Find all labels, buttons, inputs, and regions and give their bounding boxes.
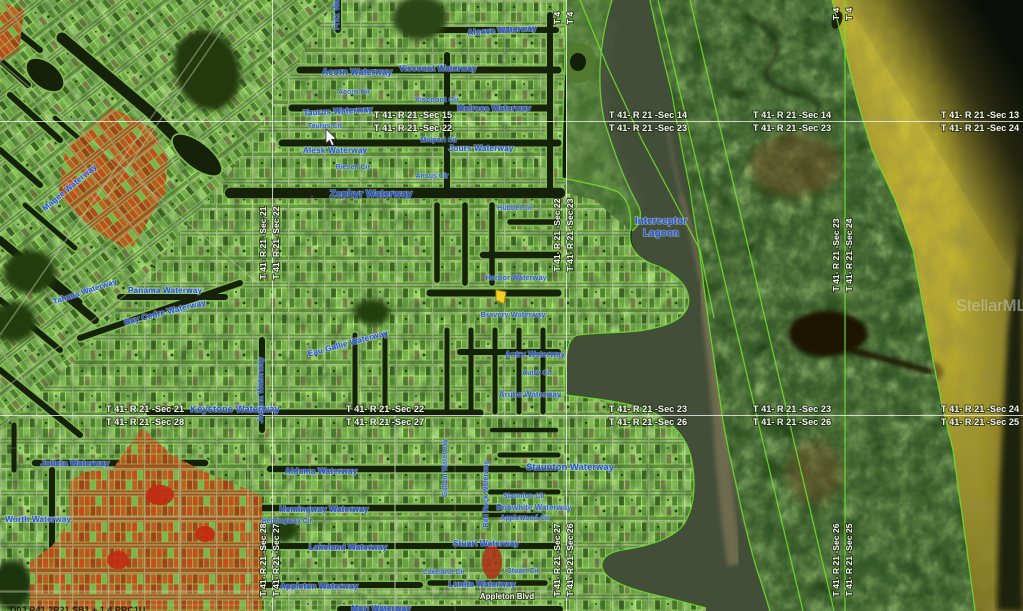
svg-text:T 4: T 4 <box>565 12 575 25</box>
svg-text:Lakeland Waterway: Lakeland Waterway <box>309 542 388 552</box>
svg-text:Autry Waterway: Autry Waterway <box>505 350 566 359</box>
svg-text:Aruba Waterway: Aruba Waterway <box>499 390 562 399</box>
svg-text:Applewood Cir: Applewood Cir <box>500 515 550 522</box>
svg-text:Julieta Waterway: Julieta Waterway <box>41 458 110 468</box>
svg-text:T 41- R 21 -Sec 23: T 41- R 21 -Sec 23 <box>609 404 687 414</box>
svg-text:Stuart Cir: Stuart Cir <box>507 568 539 575</box>
svg-text:Ansus Cir: Ansus Cir <box>415 173 448 180</box>
svg-text:T 41- R 21 -Sec 26: T 41- R 21 -Sec 26 <box>831 523 841 596</box>
svg-text:T 4: T 4 <box>552 12 562 25</box>
svg-text:Jours Waterway: Jours Waterway <box>449 143 514 153</box>
svg-text:Bobwhite Waterway: Bobwhite Waterway <box>496 503 572 512</box>
svg-text:T 41- R 21 -Sec 27: T 41- R 21 -Sec 27 <box>346 417 424 427</box>
svg-text:Zephyr Waterway: Zephyr Waterway <box>330 189 413 200</box>
svg-text:Fritz Waterway: Fritz Waterway <box>332 0 341 30</box>
svg-text:T 41- R 21 -Sec 27: T 41- R 21 -Sec 27 <box>552 523 562 596</box>
svg-text:T 41- R 21 -Sec 26: T 41- R 21 -Sec 26 <box>609 417 687 427</box>
svg-text:T 41- R 21 -Sec 26: T 41- R 21 -Sec 26 <box>565 523 575 596</box>
svg-text:T 41- R 21 -Sec 25: T 41- R 21 -Sec 25 <box>941 417 1019 427</box>
svg-text:Red Rock Waterway: Red Rock Waterway <box>483 461 490 528</box>
svg-text:Lakeland Cir: Lakeland Cir <box>423 569 465 576</box>
svg-text:Mori Waterway: Mori Waterway <box>351 603 411 611</box>
svg-text:Stuart Waterway: Stuart Waterway <box>453 538 520 548</box>
svg-text:T 41- R 21 -Sec 22: T 41- R 21 -Sec 22 <box>552 198 562 271</box>
svg-text:Bravery Waterway: Bravery Waterway <box>481 310 547 319</box>
svg-text:Worth Waterway: Worth Waterway <box>5 514 71 524</box>
svg-text:T 41- R 21 -Sec 27: T 41- R 21 -Sec 27 <box>271 523 281 596</box>
svg-text:Autry Cir: Autry Cir <box>522 370 552 377</box>
svg-text:Lagoon: Lagoon <box>643 228 679 239</box>
svg-text:Interceptor: Interceptor <box>635 216 687 227</box>
svg-text:Viscount Cir: Viscount Cir <box>415 95 459 104</box>
svg-text:Hemingway Cir: Hemingway Cir <box>262 518 313 525</box>
svg-text:T 41- R 21 -Sec 21: T 41- R 21 -Sec 21 <box>106 404 184 414</box>
svg-text:T 41- R 21 -Sec 28: T 41- R 21 -Sec 28 <box>258 523 268 596</box>
svg-text:T 41- R 21 -Sec 22: T 41- R 21 -Sec 22 <box>374 123 452 133</box>
svg-text:Melrose Waterway: Melrose Waterway <box>457 103 531 113</box>
svg-text:Acorn Waterway: Acorn Waterway <box>322 67 392 77</box>
svg-text:T 41- R 21 -Sec 23: T 41- R 21 -Sec 23 <box>753 123 831 133</box>
svg-text:T 4: T 4 <box>844 8 854 21</box>
svg-text:Keystone Waterway: Keystone Waterway <box>190 404 280 415</box>
svg-text:Aldama Waterway: Aldama Waterway <box>285 466 358 476</box>
svg-text:Viscount Waterway: Viscount Waterway <box>399 63 477 73</box>
svg-text:Lunita Waterway: Lunita Waterway <box>448 579 515 589</box>
svg-text:Gallant Waterway: Gallant Waterway <box>442 439 449 497</box>
svg-text:D03 R41 2R21 SB1 + 1 4 PRC1U: D03 R41 2R21 SB1 + 1 4 PRC1U <box>10 605 145 611</box>
svg-text:T 41- R 21 -Sec 14: T 41- R 21 -Sec 14 <box>753 110 832 120</box>
svg-text:Taurus Cir: Taurus Cir <box>308 123 343 130</box>
svg-text:T 41- R 21 -Sec 26: T 41- R 21 -Sec 26 <box>753 417 831 427</box>
svg-text:Harbor Waterway: Harbor Waterway <box>485 273 547 282</box>
svg-text:Appleton Blvd: Appleton Blvd <box>480 592 534 601</box>
svg-text:T 41- R 21 -Sec 24: T 41- R 21 -Sec 24 <box>844 218 854 291</box>
svg-text:Riesen Cir: Riesen Cir <box>336 164 371 171</box>
svg-text:Panama Waterway: Panama Waterway <box>128 285 203 295</box>
svg-text:T 41- R 21 -Sec 13: T 41- R 21 -Sec 13 <box>941 110 1019 120</box>
svg-text:Staunton Waterway: Staunton Waterway <box>526 462 615 473</box>
svg-text:T 41- R 21 -Sec 28: T 41- R 21 -Sec 28 <box>106 417 184 427</box>
svg-text:T 41- R 21 -Sec 14: T 41- R 21 -Sec 14 <box>609 110 688 120</box>
svg-text:T 4: T 4 <box>831 8 841 21</box>
svg-text:T 41- R 21 -Sec 24: T 41- R 21 -Sec 24 <box>941 404 1020 414</box>
svg-text:T 41- R 21 -Sec 25: T 41- R 21 -Sec 25 <box>844 523 854 596</box>
svg-text:T 41- R 21 -Sec 22: T 41- R 21 -Sec 22 <box>271 206 281 279</box>
svg-text:T 41- R 21 -Sec 21: T 41- R 21 -Sec 21 <box>258 206 268 279</box>
svg-text:T 41- R 21 -Sec 22: T 41- R 21 -Sec 22 <box>346 404 424 414</box>
svg-text:Acorn Cir: Acorn Cir <box>338 89 370 96</box>
svg-text:StellarMLS: StellarMLS <box>956 297 1023 315</box>
svg-text:Appleton Waterway: Appleton Waterway <box>280 581 359 591</box>
svg-text:T 41- R 21 -Sec 23: T 41- R 21 -Sec 23 <box>753 404 831 414</box>
svg-text:Hemingway Waterway: Hemingway Waterway <box>280 504 369 514</box>
svg-text:T 41- R 21 -Sec 23: T 41- R 21 -Sec 23 <box>565 198 575 271</box>
svg-text:Hubbel Cir: Hubbel Cir <box>497 205 533 212</box>
svg-text:T 41- R 21 -Sec 15: T 41- R 21 -Sec 15 <box>374 110 452 120</box>
svg-text:T 41- R 21 -Sec 23: T 41- R 21 -Sec 23 <box>831 218 841 291</box>
svg-text:Staunton Cir: Staunton Cir <box>503 493 545 500</box>
svg-text:T 41- R 21 -Sec 23: T 41- R 21 -Sec 23 <box>609 123 687 133</box>
svg-text:T 41- R 21 -Sec 24: T 41- R 21 -Sec 24 <box>941 123 1020 133</box>
svg-text:Alesk Waterway: Alesk Waterway <box>303 145 368 155</box>
